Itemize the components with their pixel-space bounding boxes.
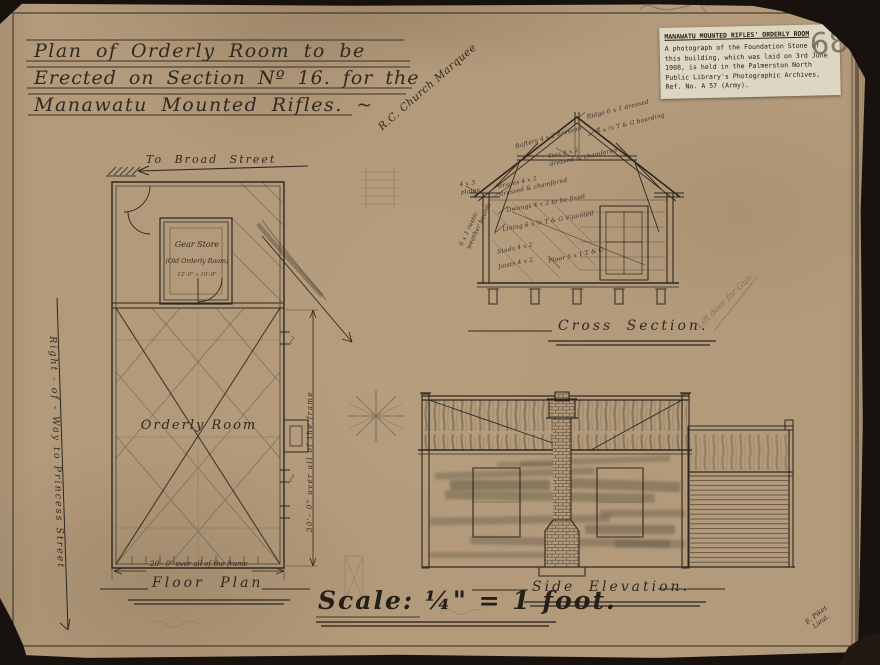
gear-store-label: Gear Store	[166, 240, 228, 249]
street-label: To Broad Street	[146, 153, 276, 166]
cross-section-caption: Cross Section.	[558, 318, 708, 334]
side-elevation-drawing	[418, 392, 795, 606]
orderly-room-label: Orderly Room	[126, 418, 272, 433]
sheet-title-line-2: Erected on Section Nº 16. for the	[34, 67, 420, 89]
compass-doodle	[348, 390, 404, 442]
sheet-title-line-1: Plan of Orderly Room to be	[34, 40, 366, 62]
scale-rules	[316, 617, 556, 626]
right-dimension: 30'- 0" over all of the frame	[306, 391, 314, 532]
scale-note: Scale: ¼" = 1 foot.	[318, 586, 617, 615]
cs-note-plates: 4 x 3 plates	[459, 179, 480, 197]
bottom-dimension: 20'- 0" over all of the frame	[134, 560, 264, 568]
sheet-title-line-3: Manawatu Mounted Rifles. ~	[34, 94, 374, 116]
drawing-sheet: Plan of Orderly Room to be Erected on Se…	[0, 0, 880, 665]
floor-plan-caption: Floor Plan	[152, 575, 263, 591]
gear-store-dimension: 12'-0" x 10'-0"	[166, 272, 228, 278]
gear-store-sublabel: (Old Orderly Room)	[160, 258, 234, 265]
